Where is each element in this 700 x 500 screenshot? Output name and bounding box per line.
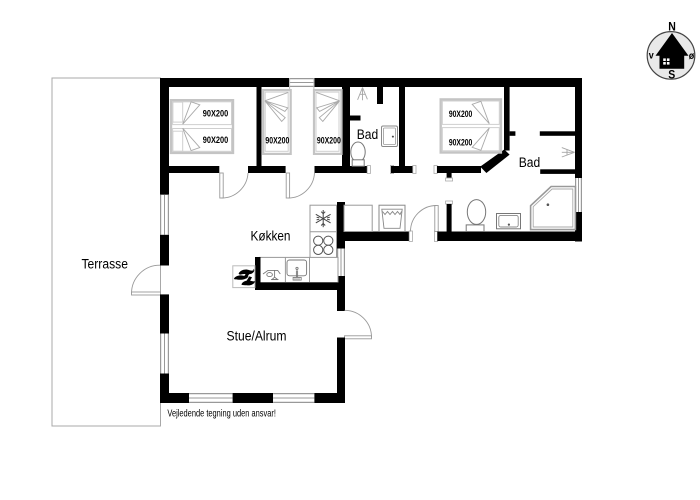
svg-text:Stue/Alrum: Stue/Alrum [227, 328, 287, 343]
svg-text:90X200: 90X200 [449, 109, 473, 120]
svg-text:Terrasse: Terrasse [81, 257, 128, 272]
svg-text:90X200: 90X200 [203, 135, 229, 146]
svg-text:Vejledende tegning uden ansvar: Vejledende tegning uden ansvar! [167, 408, 276, 419]
svg-text:90X200: 90X200 [203, 109, 229, 120]
svg-text:v: v [649, 49, 654, 61]
svg-text:Køkken: Køkken [251, 228, 291, 243]
svg-text:90X200: 90X200 [449, 137, 473, 148]
svg-text:90X200: 90X200 [265, 136, 289, 147]
svg-text:S: S [668, 69, 675, 81]
svg-text:N: N [668, 22, 676, 34]
svg-text:ø: ø [689, 50, 695, 62]
svg-text:Bad: Bad [357, 127, 379, 142]
svg-text:Bad: Bad [519, 155, 541, 170]
svg-text:90X200: 90X200 [317, 136, 341, 147]
